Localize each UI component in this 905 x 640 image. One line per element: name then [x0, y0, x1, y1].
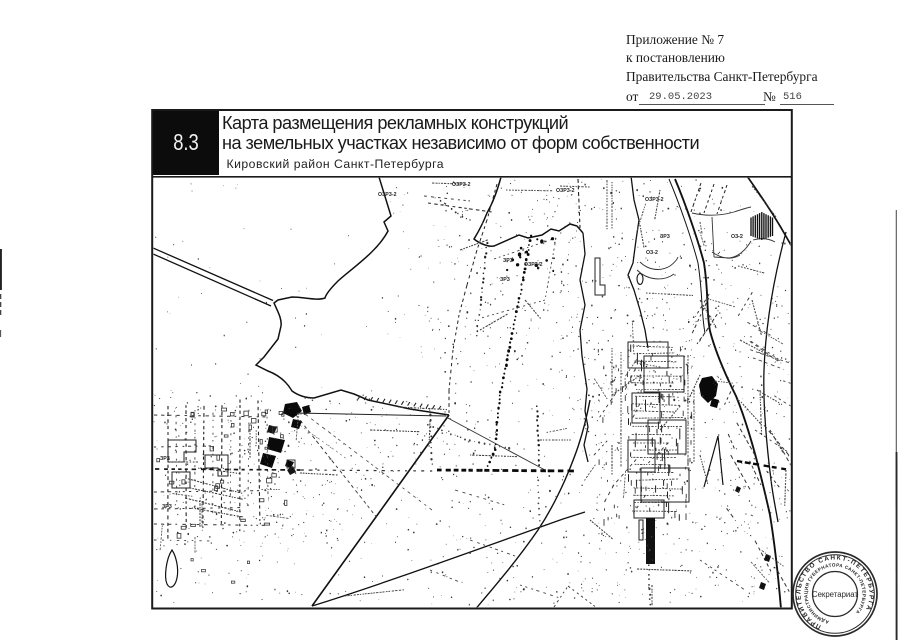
svg-text:ОЗРЗ-2: ОЗРЗ-2 [378, 192, 397, 198]
svg-text:Секретариат: Секретариат [812, 590, 858, 599]
svg-text:ЗРЗ: ЗРЗ [660, 234, 671, 240]
svg-text:ЗРЗ: ЗРЗ [500, 277, 511, 283]
svg-text:ОЗРЗ-2: ОЗРЗ-2 [645, 197, 664, 203]
svg-text:ЗРЗ: ЗРЗ [162, 504, 173, 510]
svg-text:ОЗРЗ-2: ОЗРЗ-2 [556, 188, 575, 194]
svg-text:ОЗ-2: ОЗ-2 [731, 234, 743, 240]
svg-text:ЗРЗ: ЗРЗ [160, 456, 171, 462]
svg-text:ОЗ-2: ОЗ-2 [646, 250, 658, 256]
svg-text:ОЗРЗ-2: ОЗРЗ-2 [452, 182, 471, 188]
svg-text:ОЗРЗ-2: ОЗРЗ-2 [524, 262, 543, 268]
svg-text:ЗРЗ: ЗРЗ [503, 258, 514, 264]
